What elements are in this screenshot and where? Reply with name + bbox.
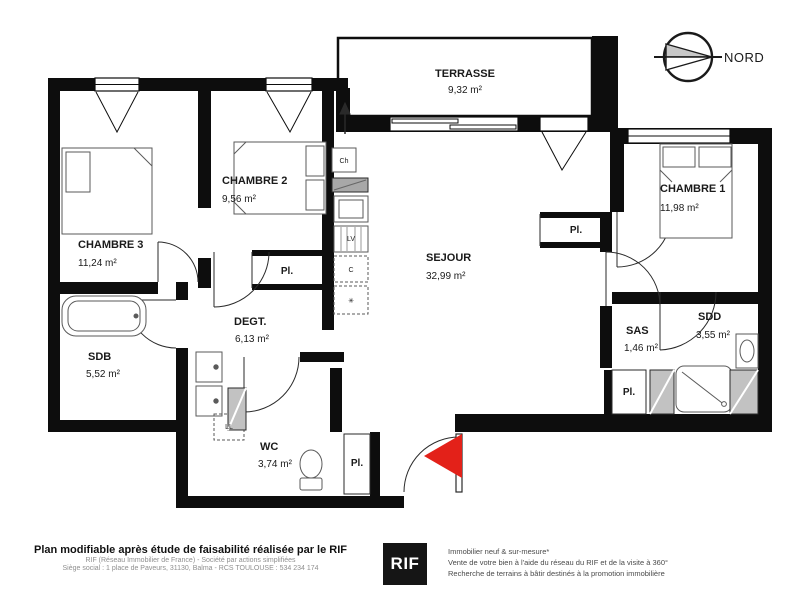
bed-chambre3 bbox=[62, 148, 152, 234]
room-label-sdd: SDD 3,55 m² bbox=[696, 311, 731, 341]
footer-service-2: Vente de votre bien à l'aide du réseau d… bbox=[448, 558, 668, 567]
door-chambre3 bbox=[158, 242, 198, 282]
room-area: 11,24 m² bbox=[78, 258, 117, 269]
room-area: 11,98 m² bbox=[660, 203, 699, 214]
compass-needle-icon bbox=[666, 44, 712, 57]
footer-left-block: Plan modifiable après étude de faisabili… bbox=[18, 544, 363, 572]
cooker-label: C bbox=[348, 267, 353, 274]
room-name: SEJOUR bbox=[426, 252, 471, 264]
footer-service-1: Immobilier neuf & sur-mesure* bbox=[448, 547, 668, 556]
vanity-units bbox=[196, 352, 222, 416]
room-area: 3,74 m² bbox=[258, 459, 293, 470]
room-name: SAS bbox=[626, 325, 649, 337]
water-heater-label: Ch bbox=[340, 158, 349, 165]
toilet bbox=[300, 450, 322, 490]
room-name: WC bbox=[260, 441, 278, 453]
floor-plan: TERRASSE 9,32 m² CHAMBRE 3 11,24 m² CHAM… bbox=[0, 0, 800, 600]
closet-label-corridor: Pl. bbox=[351, 458, 363, 469]
room-name: SDD bbox=[698, 311, 721, 323]
room-name: TERRASSE bbox=[435, 68, 495, 80]
window-chambre2 bbox=[266, 78, 312, 132]
entry-arrow-icon bbox=[424, 434, 462, 478]
room-area: 9,56 m² bbox=[222, 194, 257, 205]
bay-window-sejour bbox=[390, 117, 518, 131]
furniture bbox=[62, 142, 758, 490]
room-name: DEGT. bbox=[234, 316, 266, 328]
room-label-chambre3: CHAMBRE 3 11,24 m² bbox=[78, 239, 143, 269]
footer-right-block: Immobilier neuf & sur-mesure* Vente de v… bbox=[448, 547, 668, 580]
kitchenette bbox=[332, 148, 368, 314]
window-chambre3 bbox=[95, 78, 139, 132]
closet-label-chambre2: Pl. bbox=[281, 266, 293, 277]
room-area: 1,46 m² bbox=[624, 343, 659, 354]
window-chambre1 bbox=[628, 129, 730, 143]
bathtub bbox=[62, 296, 146, 336]
compass: NORD bbox=[654, 33, 764, 81]
rif-logo: RIF bbox=[383, 543, 427, 585]
footer-service-3: Recherche de terrains à bâtir destinés à… bbox=[448, 569, 668, 578]
footer: Plan modifiable après étude de faisabili… bbox=[0, 538, 800, 600]
closet-label-sejour: Pl. bbox=[570, 225, 582, 236]
room-area: 6,13 m² bbox=[235, 334, 270, 345]
washbasin-sdd bbox=[736, 334, 758, 368]
room-name: SDB bbox=[88, 351, 111, 363]
room-name: CHAMBRE 2 bbox=[222, 175, 287, 187]
shower-tray bbox=[676, 366, 732, 412]
room-name: CHAMBRE 1 bbox=[660, 183, 725, 195]
closet-label-sas: Pl. bbox=[623, 387, 635, 398]
dishwasher-label: LV bbox=[347, 236, 355, 243]
window-sejour-east bbox=[540, 117, 588, 170]
room-label-sdb: SDB 5,52 m² bbox=[86, 351, 121, 380]
footer-title: Plan modifiable après étude de faisabili… bbox=[18, 544, 363, 556]
door-chambre2 bbox=[214, 252, 269, 307]
room-area: 9,32 m² bbox=[448, 85, 483, 96]
room-label-degt: DEGT. 6,13 m² bbox=[234, 316, 270, 345]
room-label-sejour: SEJOUR 32,99 m² bbox=[426, 252, 471, 282]
washing-machine-label: LL bbox=[225, 424, 233, 431]
room-label-sas: SAS 1,46 m² bbox=[624, 325, 659, 354]
door-wc bbox=[244, 357, 299, 412]
room-area: 3,55 m² bbox=[696, 330, 731, 341]
room-area: 5,52 m² bbox=[86, 369, 121, 380]
compass-label: NORD bbox=[724, 50, 764, 65]
room-label-wc: WC 3,74 m² bbox=[258, 441, 293, 470]
fridge-label: ✳ bbox=[348, 297, 354, 305]
footer-address-line: Siège social : 1 place de Paveurs, 31130… bbox=[18, 565, 363, 572]
room-area: 32,99 m² bbox=[426, 271, 466, 282]
room-name: CHAMBRE 3 bbox=[78, 239, 143, 251]
footer-company-line: RIF (Réseau Immobilier de France) - Soci… bbox=[18, 557, 363, 564]
